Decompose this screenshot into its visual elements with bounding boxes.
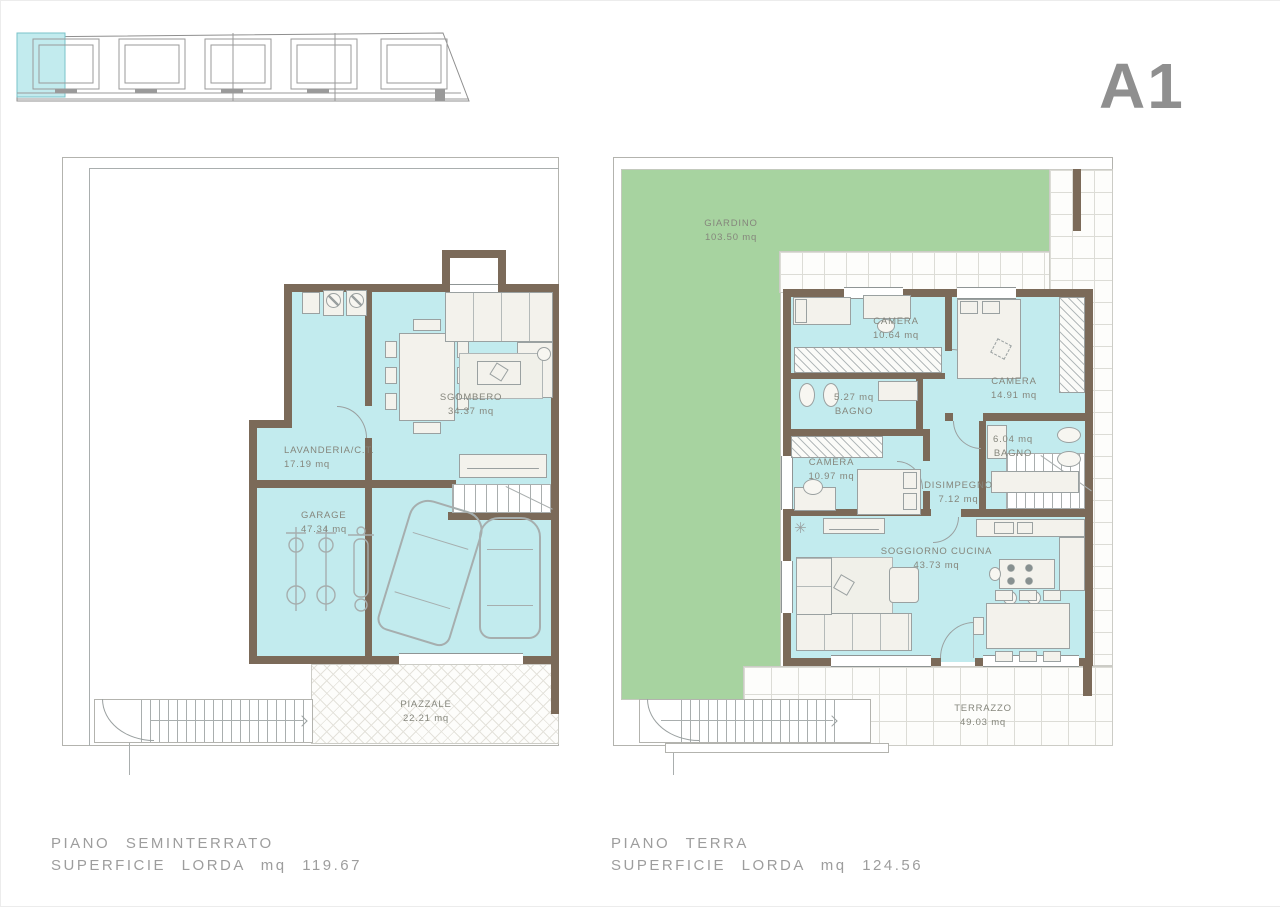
room-label-lavanderia: LAVANDERIA/C.T. 17.19 mq [284,444,404,473]
wall-stub [1083,666,1092,696]
plant-icon: ✳ [794,519,807,537]
chair [995,590,1013,601]
wall [442,250,506,258]
kitchen-counter [1059,537,1085,591]
external-stair-treads [141,700,312,742]
window [831,655,931,667]
boundary-line [89,168,90,746]
wall [783,289,846,297]
kitchen-sink [994,522,1014,534]
site-key-plan [15,27,471,109]
wall [1085,289,1093,666]
wall [249,420,257,664]
interior-stair [452,484,551,513]
toilet [1057,427,1081,443]
floor-plan-sheet: A1 [0,0,1280,907]
wall [1077,658,1093,666]
room-label-camera2: CAMERA 14.91 mq [959,375,1069,404]
chair [413,319,441,331]
pillow [795,299,807,323]
room-label-camera1: CAMERA 10.64 mq [841,315,951,344]
gate-post-line [129,743,130,775]
room-label-camera3: CAMERA 10.97 mq [789,456,874,485]
stair-direction-line [151,720,303,721]
chair [1043,590,1061,601]
chair [413,422,441,434]
wall [498,284,559,292]
chair [385,367,397,384]
caption-seminterrato: PIANO SEMINTERRATO SUPERFICIE LORDA mq 1… [51,833,362,877]
sofa [796,613,912,651]
wall-interior [783,429,923,436]
room-label-piazzale: PIAZZALE 22.21 mq [361,698,491,727]
unit-label: A1 [1099,49,1185,123]
caption-title: PIANO SEMINTERRATO [51,833,362,855]
toilet [799,383,815,407]
wardrobe [791,436,883,458]
floor-lamp [537,347,551,361]
wall-interior [983,413,1093,421]
highlighted-unit-a1 [17,33,65,97]
wall-interior [923,429,930,461]
wall [783,508,791,563]
wall [1014,289,1093,297]
caption-area: SUPERFICIE LORDA mq 124.56 [611,855,923,877]
room-label-bagno1: 5.27 mq BAGNO [814,391,894,420]
room-label-garage: GARAGE 47.34 mq [301,509,391,538]
boundary-line [89,168,559,169]
chair [995,651,1013,662]
room-label-giardino: GIARDINO 103.50 mq [666,217,796,246]
wall-stub [1073,169,1081,231]
chair [1043,651,1061,662]
room-label-soggiorno: SOGGIORNO CUCINA 43.73 mq [869,545,1004,574]
wall [523,656,559,664]
wall [249,656,399,664]
wall-stub [551,664,559,714]
window [957,287,1016,299]
room-label-sgombero: SGOMBERO 34.37 mq [396,391,546,420]
washer-drum-icon [326,293,341,308]
room-label-disimpegno: DISIMPEGNO 7.12 mq [906,479,1011,508]
wall-interior [961,509,1093,517]
pillow [982,301,1000,314]
stove-island [999,559,1055,589]
room-label-terrazzo: TERRAZZO 49.03 mq [923,702,1043,731]
wall [284,284,292,428]
wardrobe [794,347,942,373]
chair [973,617,984,635]
wall-interior [255,480,456,488]
sofa [445,292,553,342]
room-label-bagno2: 6.04 mq BAGNO [973,433,1053,462]
laundry-sink [302,292,320,314]
dryer-drum-icon [349,293,364,308]
window [781,561,793,613]
wall-interior [945,413,953,421]
caption-terra: PIANO TERRA SUPERFICIE LORDA mq 124.56 [611,833,923,877]
external-stair-treads [681,700,839,742]
car [479,517,541,639]
caption-title: PIANO TERRA [611,833,923,855]
chair [1019,590,1037,601]
dining-table [986,603,1070,649]
wall [783,658,833,666]
chair [1019,651,1037,662]
stair-landing [665,743,889,753]
chair [385,341,397,358]
pillow [960,301,978,314]
garden-area [621,253,781,700]
kitchen-sink [1017,522,1033,534]
bidet [1057,451,1081,467]
sofa-return [796,557,832,615]
caption-area: SUPERFICIE LORDA mq 119.67 [51,855,362,877]
